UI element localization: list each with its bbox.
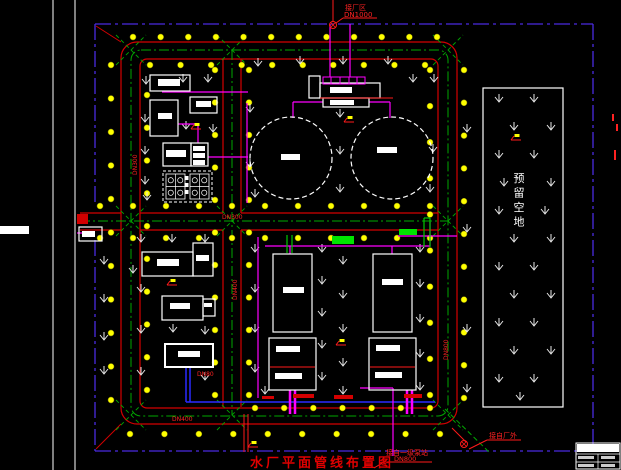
tree xyxy=(268,34,274,40)
tree xyxy=(281,405,287,411)
grass-mark xyxy=(530,318,538,326)
grass-mark xyxy=(547,234,555,242)
building-label-bar xyxy=(196,255,209,261)
grass-mark xyxy=(100,256,108,264)
grass-mark xyxy=(318,340,326,348)
tree xyxy=(158,34,164,40)
grass-mark xyxy=(137,325,145,333)
grass-mark xyxy=(141,176,149,184)
green-structure-fill xyxy=(332,236,354,244)
filter-cell-drain xyxy=(168,178,173,183)
grass-mark xyxy=(426,184,434,192)
grass-mark xyxy=(168,234,176,242)
red-structure-fill xyxy=(293,394,314,398)
frame-patch xyxy=(0,226,29,234)
tree xyxy=(328,203,334,209)
hydrant-icon xyxy=(195,123,200,126)
tree xyxy=(461,133,467,139)
grass-mark xyxy=(141,114,149,122)
tree xyxy=(229,235,235,241)
grass-mark xyxy=(416,314,424,322)
tree xyxy=(369,405,375,411)
tree xyxy=(427,67,433,73)
tree xyxy=(310,405,316,411)
grass-mark xyxy=(336,146,344,154)
tree xyxy=(427,392,433,398)
filter-mid-box xyxy=(185,183,189,187)
grass-mark xyxy=(251,189,259,197)
grass-mark xyxy=(204,74,212,82)
tree xyxy=(212,327,218,333)
tree xyxy=(144,289,150,295)
building-label-bar xyxy=(330,87,352,93)
tree xyxy=(97,203,103,209)
tree xyxy=(427,405,433,411)
tree xyxy=(144,223,150,229)
tree xyxy=(108,263,114,269)
tree xyxy=(295,235,301,241)
pipe-label: DN80 xyxy=(197,371,214,378)
building-label-bar xyxy=(158,79,180,86)
tree xyxy=(130,203,136,209)
pipe-label: 接自厂外 xyxy=(489,431,517,440)
reserved-area-label: 留 xyxy=(514,187,525,200)
tree xyxy=(246,230,252,236)
grass-mark xyxy=(339,386,347,394)
grass-mark xyxy=(339,56,347,64)
tree xyxy=(361,62,367,68)
hydrant-icon xyxy=(171,279,176,282)
tree xyxy=(196,203,202,209)
grass-mark xyxy=(201,234,209,242)
pipe-label: DN800 xyxy=(394,455,416,463)
tree xyxy=(108,196,114,202)
grass-mark xyxy=(339,324,347,332)
tree xyxy=(340,405,346,411)
tree xyxy=(262,203,268,209)
grass-mark xyxy=(318,372,326,380)
grass-mark xyxy=(318,244,326,252)
grass-mark xyxy=(384,56,392,64)
building-label-bar xyxy=(330,100,354,105)
tree xyxy=(212,230,218,236)
filter-cell-drain xyxy=(202,190,207,195)
grass-mark xyxy=(339,290,347,298)
road-corner-spur xyxy=(96,26,121,42)
building-label-bar xyxy=(376,345,400,351)
grass-mark xyxy=(318,276,326,284)
tree xyxy=(144,158,150,164)
filter-cell-drain xyxy=(202,178,207,183)
pipe-label: DN300 xyxy=(222,214,243,221)
red-tick xyxy=(614,150,616,160)
grass-mark xyxy=(510,346,518,354)
tree xyxy=(212,392,218,398)
tree xyxy=(196,431,202,437)
grass-mark xyxy=(495,206,503,214)
grass-mark xyxy=(100,332,108,340)
hydrant-icon xyxy=(340,339,345,342)
filter-mid-box xyxy=(185,190,189,194)
tree xyxy=(108,163,114,169)
building-label-bar xyxy=(157,259,179,266)
tree xyxy=(246,67,252,73)
tree xyxy=(379,34,385,40)
tree xyxy=(108,330,114,336)
tree xyxy=(427,175,433,181)
drawing-title: 水厂平面管线布置图 xyxy=(250,452,394,470)
tree xyxy=(246,295,252,301)
tree xyxy=(461,67,467,73)
grass-mark xyxy=(416,279,424,287)
tree xyxy=(368,431,374,437)
grass-mark xyxy=(500,178,508,186)
tree xyxy=(246,360,252,366)
grass-mark xyxy=(510,290,518,298)
grass-mark xyxy=(495,374,503,382)
tree xyxy=(178,62,184,68)
grass-mark xyxy=(339,256,347,264)
hydrant-icon xyxy=(252,441,257,444)
tree xyxy=(144,387,150,393)
grass-mark xyxy=(530,374,538,382)
tree xyxy=(108,397,114,403)
workshop-wing xyxy=(203,299,215,316)
tree xyxy=(461,198,467,204)
tree xyxy=(212,197,218,203)
pipe-label: DN400 xyxy=(232,279,239,300)
title-block-text-mark xyxy=(601,456,615,459)
building-label-bar xyxy=(82,231,95,237)
tree xyxy=(406,34,412,40)
grass-mark xyxy=(495,318,503,326)
tree xyxy=(147,62,153,68)
tree xyxy=(130,34,136,40)
grass-mark xyxy=(336,184,344,192)
tree xyxy=(127,431,133,437)
tree xyxy=(427,103,433,109)
grass-mark xyxy=(142,76,150,84)
tree xyxy=(391,62,397,68)
pipe-label: DN800 xyxy=(443,339,450,360)
grass-mark xyxy=(141,146,149,154)
building-label-bar xyxy=(281,154,300,160)
grass-mark xyxy=(339,358,347,366)
tree xyxy=(108,96,114,102)
tree xyxy=(108,62,114,68)
reserved-area xyxy=(483,88,563,407)
red-structure-fill xyxy=(77,214,88,224)
tree xyxy=(230,431,236,437)
pipe-red xyxy=(452,428,466,442)
building-label-bar xyxy=(170,303,190,309)
red-structure-fill xyxy=(404,394,422,398)
tree xyxy=(212,132,218,138)
tree xyxy=(108,230,114,236)
building-label-bar xyxy=(276,346,300,352)
tree xyxy=(108,364,114,370)
tree xyxy=(351,34,357,40)
tree xyxy=(427,356,433,362)
building-label-bar xyxy=(166,150,186,157)
green-structure-fill xyxy=(399,229,417,235)
grass-mark xyxy=(547,346,555,354)
tree xyxy=(461,395,467,401)
tree xyxy=(144,92,150,98)
building-label-bar xyxy=(382,279,403,285)
tree xyxy=(295,203,301,209)
building-label-bar xyxy=(275,373,302,379)
grass-mark xyxy=(409,74,417,82)
title-block-text-mark xyxy=(578,456,594,459)
reserved-area-label: 预 xyxy=(514,172,525,185)
grass-mark xyxy=(100,366,108,374)
red-tick xyxy=(616,124,618,131)
basin-3 xyxy=(269,338,316,390)
tree xyxy=(427,211,433,217)
tree xyxy=(461,264,467,270)
grass-mark xyxy=(547,122,555,130)
tree xyxy=(299,431,305,437)
grass-mark xyxy=(209,124,217,132)
tree xyxy=(427,203,433,209)
red-structure-fill xyxy=(334,395,353,399)
grass-mark xyxy=(430,74,438,82)
top-building-wing xyxy=(309,76,320,98)
site-plan-svg: 接厂区DN1000接自一级泵站DN800接自厂外DN300DN300DN400D… xyxy=(0,0,621,470)
grass-mark xyxy=(100,294,108,302)
tree xyxy=(212,67,218,73)
building-label-bar xyxy=(377,147,397,153)
red-structure-fill xyxy=(262,396,274,399)
tree xyxy=(403,431,409,437)
title-block-header xyxy=(577,444,619,452)
tree xyxy=(108,129,114,135)
tree xyxy=(163,235,169,241)
title-block-text-mark xyxy=(601,464,615,467)
tree xyxy=(130,235,136,241)
filter-cell-drain xyxy=(192,178,197,183)
tree xyxy=(269,62,275,68)
filter-cell-drain xyxy=(178,190,183,195)
tree xyxy=(144,256,150,262)
grass-mark xyxy=(261,386,269,394)
grass-mark xyxy=(495,94,503,102)
cad-drawing-canvas: 接厂区DN1000接自一级泵站DN800接自厂外DN300DN300DN400D… xyxy=(0,0,621,470)
filter-cell-drain xyxy=(192,190,197,195)
tree xyxy=(144,125,150,131)
pipe-red xyxy=(469,440,487,449)
building-label-bar xyxy=(178,351,200,357)
tree xyxy=(108,297,114,303)
grass-mark xyxy=(137,367,145,375)
pipe-label: DN400 xyxy=(172,416,193,423)
hydrant-icon xyxy=(348,116,353,119)
tree xyxy=(461,100,467,106)
grass-mark xyxy=(182,121,190,129)
filter-cell-drain xyxy=(178,178,183,183)
grass-mark xyxy=(463,384,471,392)
grass-mark xyxy=(201,326,209,334)
tree xyxy=(427,320,433,326)
tree xyxy=(461,165,467,171)
grass-mark xyxy=(547,290,555,298)
tree xyxy=(422,62,428,68)
tree xyxy=(361,235,367,241)
exit-road-centerline xyxy=(445,409,490,453)
grass-mark xyxy=(510,122,518,130)
tree xyxy=(334,431,340,437)
grass-mark xyxy=(336,109,344,117)
grass-mark xyxy=(530,150,538,158)
tree xyxy=(461,231,467,237)
grass-mark xyxy=(318,308,326,316)
tree xyxy=(262,235,268,241)
title-block-text-mark xyxy=(578,464,594,467)
grass-mark xyxy=(463,124,471,132)
tree xyxy=(144,321,150,327)
tree xyxy=(265,431,271,437)
building-label-bar xyxy=(204,303,212,307)
grass-mark xyxy=(169,324,177,332)
tree xyxy=(144,354,150,360)
pipe-red xyxy=(336,18,343,23)
tree xyxy=(196,235,202,241)
tree xyxy=(212,165,218,171)
red-tick xyxy=(612,114,614,121)
pipe-label: DN1000 xyxy=(344,11,372,19)
tree xyxy=(437,431,443,437)
grass-mark xyxy=(510,234,518,242)
tree xyxy=(208,62,214,68)
tree xyxy=(427,284,433,290)
building-label-bar xyxy=(193,160,205,165)
tree xyxy=(246,262,252,268)
building-label-bar xyxy=(196,101,211,107)
tree xyxy=(185,34,191,40)
grass-mark xyxy=(547,178,555,186)
tree xyxy=(239,62,245,68)
tree xyxy=(394,203,400,209)
tree xyxy=(252,405,258,411)
grass-mark xyxy=(495,262,503,270)
tree xyxy=(296,34,302,40)
tree xyxy=(434,34,440,40)
tree xyxy=(461,362,467,368)
hydrant-icon xyxy=(515,134,520,137)
filter-mid-box xyxy=(185,176,189,180)
clearwater-tank-2 xyxy=(351,117,433,199)
building-label-bar xyxy=(193,146,205,151)
pipe-label: DN300 xyxy=(132,154,139,175)
grass-mark xyxy=(516,392,524,400)
building-label-bar xyxy=(193,153,205,158)
tree xyxy=(246,392,252,398)
tree xyxy=(241,34,247,40)
grass-mark xyxy=(416,244,424,252)
tree xyxy=(213,34,219,40)
tree xyxy=(163,203,169,209)
grass-mark xyxy=(541,206,549,214)
tree xyxy=(398,405,404,411)
reserved-area-label: 地 xyxy=(514,216,525,229)
tree xyxy=(229,203,235,209)
building-label-bar xyxy=(158,113,172,119)
building-label-bar xyxy=(283,287,304,293)
tree xyxy=(330,62,336,68)
building-label-bar xyxy=(375,372,402,378)
reserved-area-label: 空 xyxy=(514,200,525,214)
tree xyxy=(427,248,433,254)
tree xyxy=(461,297,467,303)
grass-mark xyxy=(129,265,137,273)
grass-mark xyxy=(137,284,145,292)
grass-mark xyxy=(530,262,538,270)
grass-mark xyxy=(416,349,424,357)
grass-mark xyxy=(495,150,503,158)
basin-2 xyxy=(373,254,412,332)
tree xyxy=(323,34,329,40)
grass-mark xyxy=(416,382,424,390)
tree xyxy=(161,431,167,437)
grass-mark xyxy=(137,234,145,242)
grass-mark xyxy=(530,94,538,102)
road-corner-spur xyxy=(96,424,121,449)
filter-cell-drain xyxy=(168,190,173,195)
tree xyxy=(361,203,367,209)
